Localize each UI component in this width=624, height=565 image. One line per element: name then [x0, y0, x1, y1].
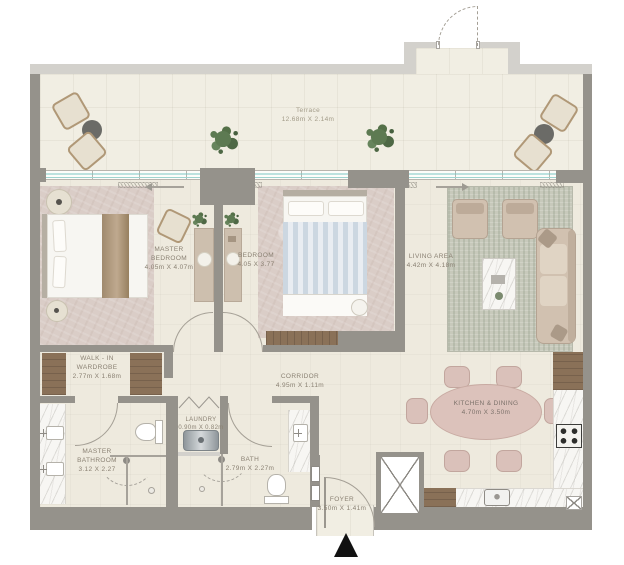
kitchen-sink: [484, 489, 510, 506]
foyer-closet: [311, 466, 320, 482]
potted-plant-icon: [227, 215, 235, 223]
bed-throw-blanket: [102, 214, 129, 298]
laundry-name: LAUNDRY: [185, 417, 216, 423]
master-bedroom-name: MASTER BEDROOM: [151, 246, 187, 262]
coffee-table: [482, 258, 516, 310]
armchair-back-cushion: [456, 203, 484, 214]
arrow-head-left-icon: [145, 183, 152, 191]
sink: [46, 426, 64, 440]
wall-segment: [583, 74, 592, 530]
wall-segment: [404, 42, 438, 48]
elevator-shaft: [376, 452, 424, 518]
entrance-marker-icon: [334, 533, 358, 557]
service-box: [566, 496, 582, 510]
walk-in-wardrobe-label: WALK - IN WARDROBE 2.77m X 1.68m: [69, 355, 125, 381]
potted-plant-icon: [195, 215, 203, 223]
wall-segment: [30, 507, 312, 530]
bedroom-name: BEDROOM: [238, 252, 274, 259]
corridor-label: CORRIDOR 4.95m X 1.11m: [268, 373, 332, 391]
table-dot: [56, 199, 62, 205]
wall-segment: [214, 205, 223, 352]
entry-door-swing: [438, 6, 478, 46]
wardrobe-unit: [42, 353, 66, 395]
pillow: [288, 201, 324, 216]
terrace-name: Terrace: [296, 107, 320, 114]
desk-item: [228, 236, 236, 242]
floor-drain: [148, 487, 155, 494]
terrace-dims: 12.68m X 2.14m: [266, 116, 350, 125]
pillow: [52, 220, 67, 253]
slide-direction-arrow-right: [436, 186, 462, 188]
toilet-tank: [155, 420, 163, 444]
bedroom-label: BEDROOM 4.05 X 3.77: [228, 252, 284, 270]
sofa-back: [568, 230, 575, 342]
laundry-dims: 0.90m X 0.82m: [178, 424, 224, 432]
wardrobe-unit: [130, 353, 162, 395]
dining-chair: [444, 450, 470, 472]
kitchen-cabinet: [424, 488, 456, 507]
corridor-dims: 4.95m X 1.11m: [268, 382, 332, 391]
wall-segment: [520, 64, 592, 74]
potted-plant-icon: [371, 129, 387, 145]
kitchen-tall-cabinet: [553, 352, 583, 390]
wall-segment: [166, 396, 178, 507]
living-area-dims: 4.42m X 4.18m: [406, 262, 456, 271]
foyer-label: FOYER 3.50m X 1.41m: [316, 496, 368, 514]
bathroom-vanity-counter: [38, 404, 66, 504]
master-bathroom-name: MASTER BATHROOM: [77, 448, 117, 464]
walk-in-wardrobe-name: WALK - IN WARDROBE: [77, 355, 118, 371]
living-area-label: LIVING AREA 4.42m X 4.18m: [406, 253, 456, 271]
sink: [46, 462, 64, 476]
master-bedroom-dims: 4.05m X 4.07m: [140, 264, 198, 273]
pillow: [52, 256, 67, 289]
kitchen-dining-dims: 4.70m X 3.50m: [436, 409, 536, 418]
round-stool: [351, 299, 368, 316]
foyer-dims: 3.50m X 1.41m: [316, 505, 368, 514]
floor-drain: [199, 486, 205, 492]
foyer-name: FOYER: [330, 496, 354, 503]
toilet-tank: [264, 496, 289, 504]
sofa-cushion: [540, 244, 567, 274]
window-master-bedroom: [46, 170, 200, 180]
toilet-bowl: [267, 474, 286, 496]
dining-chair: [496, 450, 522, 472]
wall-segment: [164, 352, 173, 378]
corridor-name: CORRIDOR: [281, 373, 319, 380]
table-dot: [54, 308, 59, 313]
faucet-icon: [294, 429, 302, 437]
window-living: [409, 170, 556, 180]
desk-chair: [197, 252, 212, 267]
coffee-table-plant: [495, 292, 503, 300]
wall-segment: [40, 345, 173, 352]
stove-cooktop: [556, 424, 582, 448]
dining-chair: [406, 398, 428, 424]
master-bathroom-label: MASTER BATHROOM 3.12 X 2.27: [69, 448, 125, 474]
laundry-bifold-door-icon: [178, 396, 220, 409]
wall-segment: [338, 331, 395, 352]
master-bathroom-dims: 3.12 X 2.27: [69, 466, 125, 475]
arrow-head-right-icon: [462, 183, 469, 191]
striped-duvet: [283, 222, 367, 294]
slide-direction-arrow-left: [152, 186, 184, 188]
kitchen-dining-name: KITCHEN & DINING: [454, 400, 519, 407]
coffee-table-book: [491, 275, 505, 284]
laundry-label: LAUNDRY 0.90m X 0.82m: [178, 416, 224, 432]
pillow: [328, 201, 364, 216]
wall-segment: [30, 168, 46, 182]
walk-in-wardrobe-dims: 2.77m X 1.68m: [69, 373, 125, 382]
kitchen-dining-label: KITCHEN & DINING 4.70m X 3.50m: [436, 400, 536, 418]
wall-segment: [30, 74, 40, 530]
wall-segment: [348, 170, 409, 188]
window-bedroom: [255, 170, 348, 180]
wall-segment: [200, 168, 255, 205]
potted-plant-icon: [215, 131, 231, 147]
master-bedroom-label: MASTER BEDROOM 4.05m X 4.07m: [140, 246, 198, 272]
wall-segment: [40, 396, 75, 403]
floor-plan: Terrace 12.68m X 2.14m MASTER BEDROOM 4.…: [0, 0, 624, 565]
entry-nook-floor: [416, 48, 508, 74]
wall-segment: [178, 452, 220, 456]
armchair-back-cushion: [506, 203, 534, 214]
bath-dims: 2.79m X 2.27m: [224, 465, 276, 474]
entry-door-leaf: [477, 6, 478, 46]
wall-segment: [478, 42, 520, 48]
wall-segment: [404, 46, 416, 74]
terrace-label: Terrace 12.68m X 2.14m: [266, 107, 350, 125]
wall-segment: [30, 64, 404, 74]
wall-segment: [556, 170, 584, 183]
bath-label: BATH 2.79m X 2.27m: [224, 456, 276, 474]
wall-segment: [395, 188, 405, 352]
bedroom-dims: 4.05 X 3.77: [228, 261, 284, 270]
faucet-icon: [39, 429, 47, 437]
faucet-icon: [39, 465, 47, 473]
sofa-cushion: [540, 276, 567, 306]
bath-name: BATH: [241, 456, 259, 463]
wall-segment: [508, 46, 520, 74]
living-area-name: LIVING AREA: [409, 253, 453, 260]
